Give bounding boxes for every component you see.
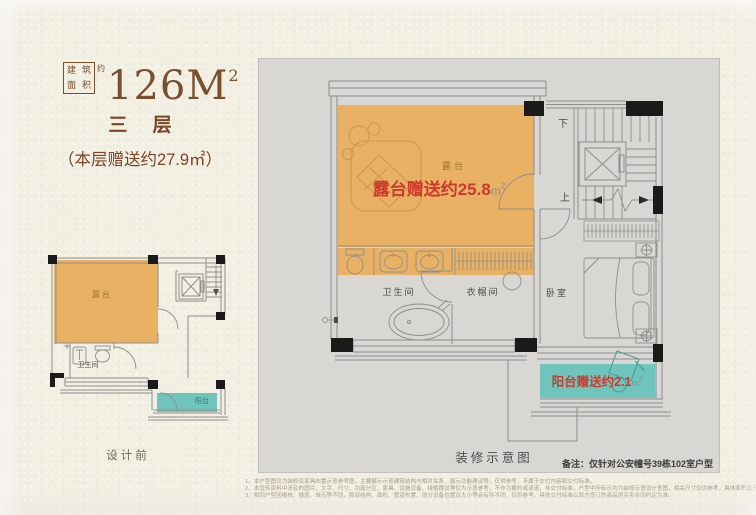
stamp-suffix: 约 <box>97 64 105 74</box>
main-plan-note: 备注：仅针对公安幢号39栋102室户型 <box>467 457 713 470</box>
bed-icon <box>584 258 654 338</box>
main-plan-decorated: 露台 露台赠送约25.8m2 下 上 卫生间 衣帽间 卧室 阳台赠送约2.1m2… <box>258 58 720 473</box>
terrace-gift-annotation: 露台赠送约25.8m2 <box>344 175 534 200</box>
small-plan-before-design: 露台 卫生间 阳台 <box>48 243 238 429</box>
main-plan-drawing <box>259 59 719 472</box>
terrace-gift-unit: m <box>491 184 501 198</box>
stamp-char: 筑 <box>79 63 94 78</box>
floor-subtitle: （本层赠送约27.9㎡） <box>20 146 260 170</box>
balcony-gift-unit: m <box>632 378 640 388</box>
terrace-gift-unit-sup: 2 <box>501 181 505 190</box>
wardrobe-icon <box>584 221 659 241</box>
small-terrace-label: 露台 <box>80 289 124 300</box>
elevator-icon <box>579 142 626 186</box>
terrace-gift-text: 露台赠送约25.8 <box>373 180 491 199</box>
stairs-down-label: 下 <box>553 115 573 130</box>
disclaimer-line: 1、本户型图仅为装修及家具布置示意参考图，主要展示示意建筑结构与相对关系、展示功… <box>245 478 756 485</box>
disclaimer: 1、本户型图仅为装修及家具布置示意参考图，主要展示示意建筑结构与相对关系、展示功… <box>245 478 602 499</box>
bedroom-label: 卧室 <box>537 286 577 299</box>
stamp-char: 面 <box>64 78 79 93</box>
floor-title: 三 层 <box>40 110 240 137</box>
shutoff-valve-icon <box>323 317 339 323</box>
terrace-area <box>54 260 158 343</box>
cloakroom-label: 衣帽间 <box>460 285 506 298</box>
bathroom-label: 卫生间 <box>376 285 422 298</box>
balcony-gift-unit-sup: 2 <box>639 377 642 383</box>
stamp-char: 建 <box>64 63 79 78</box>
area-value: 126M2 <box>107 52 239 110</box>
elevator-icon <box>179 274 204 299</box>
balcony-gift-annotation: 阳台赠送约2.1m2 <box>531 371 663 390</box>
area-number: 126M <box>107 63 228 109</box>
small-balcony-label: 阳台 <box>187 396 217 406</box>
disclaimer-line: 2、本宣传资料中涉及的图片、文字、尺寸、功能分区、家具、设施设备、绿植摆设等仅为… <box>245 485 756 492</box>
stairs-up-label: 上 <box>555 189 575 204</box>
disclaimer-line: 3、相同户型因楼栋、楼层、单元等不同，局部结构、面积、管道布置、部分设备位置及大… <box>245 492 756 499</box>
small-plan-caption: 设计前 <box>33 447 223 463</box>
floorplan-page: 建 筑 面 积 约 126M2 三 层 （本层赠送约27.9㎡） <box>0 0 756 515</box>
balcony-gift-text: 阳台赠送约2.1 <box>552 375 632 389</box>
small-bathroom-label: 卫生间 <box>68 360 108 370</box>
bathtub-icon <box>389 300 450 340</box>
area-stamp: 建 筑 面 积 约 <box>63 62 95 94</box>
stamp-char: 积 <box>79 78 94 93</box>
terrace-label: 露台 <box>424 159 484 172</box>
area-brand: 建 筑 面 积 约 126M2 <box>63 52 239 110</box>
area-sup: 2 <box>228 66 238 85</box>
stairs-icon <box>206 265 222 297</box>
